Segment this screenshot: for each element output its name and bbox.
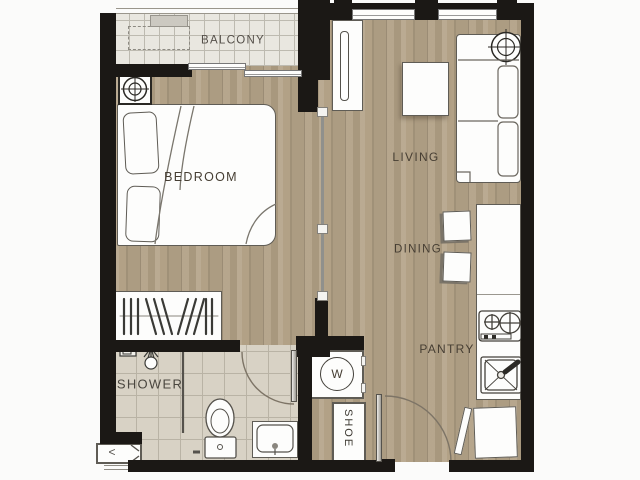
vanity-basin-icon xyxy=(257,425,293,455)
wall-bathroom-right xyxy=(298,350,312,472)
wall-bottom-corner xyxy=(100,432,142,444)
sliding-partition-node xyxy=(317,224,328,234)
shoe-label: SHOE xyxy=(342,409,354,448)
living-window xyxy=(352,9,415,20)
entrance-door-arc xyxy=(385,396,451,462)
wall-top-stub xyxy=(415,0,438,5)
living-window xyxy=(438,9,497,20)
balcony-label: BALCONY xyxy=(201,35,265,47)
wall-right xyxy=(521,10,534,472)
wardrobe-hangers xyxy=(120,299,218,334)
ac-ledge-mark: < xyxy=(108,446,115,458)
sliding-partition-track xyxy=(321,112,324,300)
kitchen-sink-icon xyxy=(481,357,521,393)
floor-plan: BALCONY BEDROOM LIVING DINING PANTRY SHO… xyxy=(0,0,640,480)
wall-top-stub xyxy=(334,0,352,5)
balcony-sliding-door-panel xyxy=(188,63,246,70)
balcony-sliding-door-panel xyxy=(244,70,302,77)
sofa-cushions xyxy=(456,60,519,182)
wall-balcony-bedroom xyxy=(114,64,192,77)
dining-label: DINING xyxy=(394,244,442,256)
wall-bottom-left xyxy=(128,460,383,472)
wall-washer-top xyxy=(296,336,364,350)
entrance-door-leaf xyxy=(376,394,382,462)
living-label: LIVING xyxy=(392,151,439,163)
ac-unit-icon xyxy=(119,74,151,104)
wall-partition-stub xyxy=(315,298,328,338)
wall-top-stub xyxy=(497,0,517,5)
bathroom-door-arc xyxy=(242,352,294,404)
wall-bathroom-top xyxy=(114,340,240,352)
bathroom-door-leaf xyxy=(291,350,297,402)
sliding-partition-node xyxy=(317,291,328,301)
wall-bottom-right xyxy=(449,460,534,472)
wall-corner-block xyxy=(298,0,330,80)
wall-left xyxy=(100,13,116,442)
cooktop-icon xyxy=(479,311,521,341)
washer-label: W xyxy=(331,368,342,380)
shower-label: SHOWER xyxy=(117,378,183,391)
pantry-label: PANTRY xyxy=(419,343,474,355)
toilet-icon xyxy=(193,399,236,458)
sliding-partition-node xyxy=(317,107,328,117)
wall-corner-block xyxy=(298,78,318,112)
bedroom-label: BEDROOM xyxy=(164,171,238,184)
